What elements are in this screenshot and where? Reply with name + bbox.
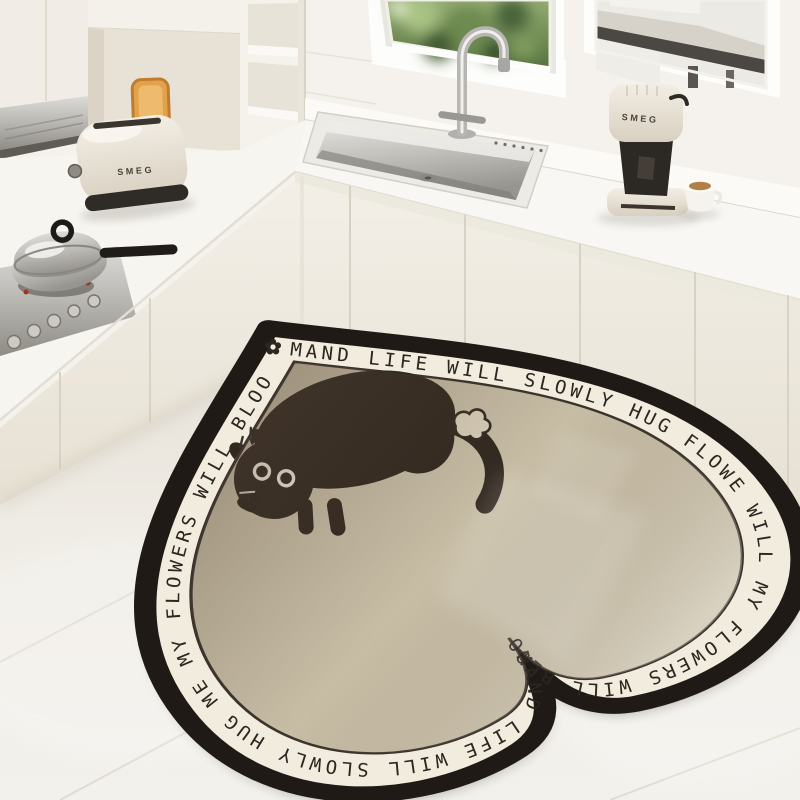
- kitchen-photo: SMEG: [0, 0, 800, 800]
- coffee: [689, 182, 711, 190]
- wall-pier: [564, 0, 584, 60]
- toaster-lever: [68, 164, 82, 178]
